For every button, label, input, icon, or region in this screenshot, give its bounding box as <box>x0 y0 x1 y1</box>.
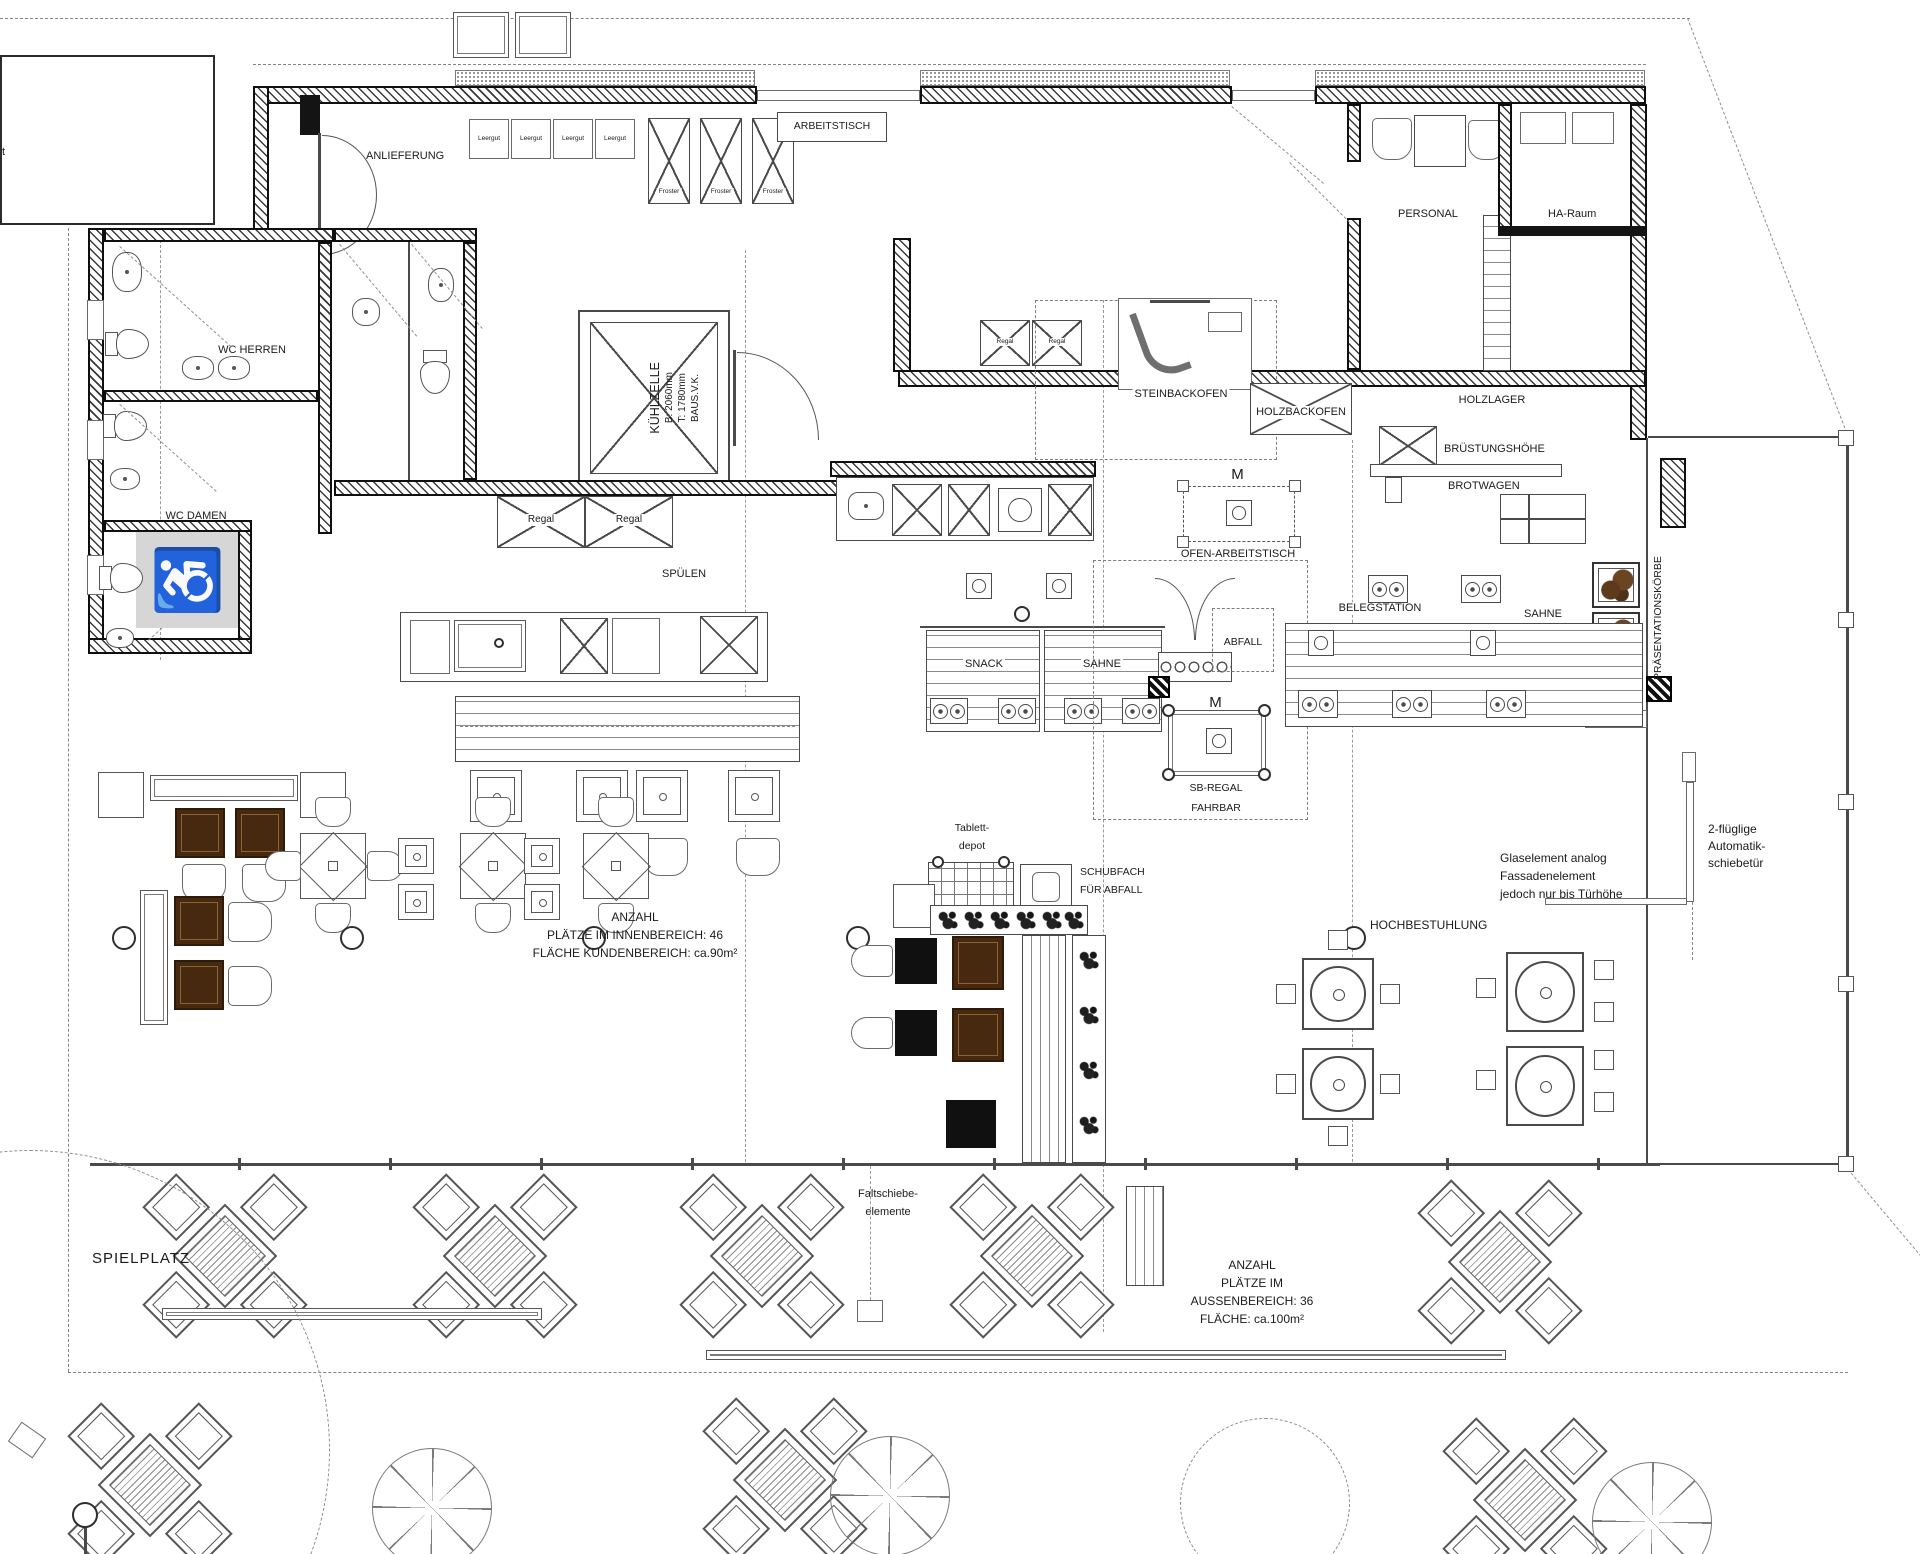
pallet-crate <box>515 12 571 58</box>
chair <box>475 797 511 827</box>
label-steinbackofen: STEINBACKOFEN <box>1133 388 1230 401</box>
pergola-column <box>1838 976 1854 992</box>
stool <box>1594 1002 1614 1022</box>
label-praesentationskoerbe: PRÄSENTATIONSKÖRBE <box>1652 520 1664 680</box>
haraum-cabinet <box>1572 112 1614 144</box>
bench-seat-vertical <box>140 890 168 1025</box>
stool <box>1594 1050 1614 1070</box>
kuehlzelle-door-swing <box>737 352 819 440</box>
exterior-wall-top <box>920 86 1232 104</box>
stool <box>1328 1126 1348 1146</box>
kuehlzelle-door-frame <box>733 350 736 446</box>
pallet-crate <box>453 12 509 58</box>
display-case <box>1368 575 1408 603</box>
haraum-wall-bottom <box>1498 226 1646 236</box>
leergut-label: Leergut <box>520 135 542 143</box>
room-label-wc-herren: WC HERREN <box>218 344 286 357</box>
label-brotwagen: BROTWAGEN <box>1448 480 1520 493</box>
dining-table <box>583 833 649 899</box>
small-table <box>398 838 434 874</box>
table-corner <box>1289 480 1301 492</box>
plant <box>1077 1113 1101 1137</box>
scullery-sink <box>454 620 526 672</box>
ofen-table-fitting <box>1226 500 1252 526</box>
label-schubfach-2: FÜR ABFALL <box>1080 884 1142 897</box>
door-jamb <box>300 95 320 135</box>
label-holzlager: HOLZLAGER <box>1459 394 1526 407</box>
room-label-personal: PERSONAL <box>1398 208 1458 221</box>
kuehlzelle-labels: KÜHLZELLE B: 2060mm T: 1780mm BAUS.V.K. <box>648 322 732 474</box>
high-table <box>1506 952 1584 1032</box>
exterior-wall-top <box>253 86 757 104</box>
delivery-door-leaf <box>322 135 377 195</box>
bar-table <box>728 770 780 822</box>
cookline-sink <box>848 492 884 520</box>
cookline-appliance <box>1048 484 1092 536</box>
brotwagen-divider-h <box>1500 518 1586 520</box>
label-sahne-right: SAHNE <box>1522 608 1564 621</box>
accessible-wc-area: ♿ <box>136 532 238 628</box>
staffwc-toilet <box>420 350 450 394</box>
table-brown <box>952 1008 1004 1062</box>
bar-counter <box>455 696 800 762</box>
plant <box>988 908 1012 932</box>
chair <box>598 797 634 827</box>
label-belegstation: BELEGSTATION <box>1337 602 1424 615</box>
note-outdoor-3: AUSSENBEREICH: 36 <box>1191 1294 1314 1308</box>
washbasin <box>182 356 214 380</box>
high-table <box>1302 958 1374 1030</box>
froster-label: Froster <box>761 188 786 196</box>
sb-caster <box>1258 704 1271 717</box>
lounge-table-brown <box>174 896 224 946</box>
plant <box>1077 1058 1101 1082</box>
kuehlzelle-baus: BAUS.V.K. <box>690 374 701 422</box>
glass-wall-segment <box>1686 782 1694 902</box>
stool <box>1380 984 1400 1004</box>
scullery-table <box>612 618 660 674</box>
tray-depot-unit <box>928 862 1014 908</box>
toilet <box>103 411 147 441</box>
leergut-label: Leergut <box>604 135 626 143</box>
oven-motor <box>1208 312 1242 332</box>
neighbor-building <box>0 55 215 225</box>
chair <box>851 945 893 977</box>
label-holzbackofen: HOLZBACKOFEN <box>1254 406 1348 419</box>
note-schiebetuer-3: schiebetür <box>1708 856 1763 870</box>
personal-locker-shelf <box>1483 215 1511 371</box>
counter-fitting <box>1014 606 1030 622</box>
note-outdoor-1: ANZAHL <box>1228 1258 1275 1272</box>
planter <box>893 884 935 928</box>
glass-partition <box>1545 898 1687 905</box>
stool <box>1476 1070 1496 1090</box>
dining-table <box>300 833 366 899</box>
display-case <box>1298 690 1338 718</box>
personal-table <box>1414 115 1466 167</box>
toilet-accessible <box>99 563 143 593</box>
bar-counter-dash <box>460 726 795 727</box>
door-swing-dotted <box>1231 106 1324 184</box>
label-schubfach-1: SCHUBFACH <box>1080 866 1145 879</box>
bakery-cafe-floor-plan: t ANLIEFERUNG Leergut Leergut Leergut Le… <box>0 0 1920 1554</box>
facade-pier <box>1660 458 1686 528</box>
window-left <box>87 300 104 340</box>
sb-caster <box>1162 704 1175 717</box>
umbrella <box>830 1436 950 1554</box>
small-table <box>398 884 434 920</box>
stool <box>1594 960 1614 980</box>
note-schiebetuer-1: 2-flüglige <box>1708 822 1757 836</box>
sb-caster <box>1258 768 1271 781</box>
label-hochbestuhlung: HOCHBESTUHLUNG <box>1370 918 1487 932</box>
washbasin <box>110 468 140 490</box>
site-line-diagonal-topright <box>1687 18 1849 438</box>
play-equipment-mushroom <box>72 1502 98 1528</box>
personal-wall-left-b <box>1347 218 1361 370</box>
urinal <box>112 252 142 292</box>
plant <box>1062 908 1086 932</box>
haraum-wall-left <box>1498 104 1512 232</box>
note-indoor-2: PLÄTZE IM INNENBEREICH: 46 <box>547 928 723 942</box>
cookline-appliance <box>892 484 942 536</box>
register <box>966 573 992 599</box>
wc-wall-right <box>318 242 332 534</box>
label-m-ofen: M <box>1231 466 1245 484</box>
leergut-label: Leergut <box>478 135 500 143</box>
lounge-table-brown <box>175 808 225 858</box>
chair <box>228 902 272 942</box>
register <box>1308 630 1334 656</box>
chair <box>736 838 780 876</box>
chair <box>265 851 301 881</box>
room-label-spuelen: SPÜLEN <box>662 568 706 581</box>
plant <box>936 908 960 932</box>
planter <box>98 772 144 818</box>
sliding-door-track <box>1692 902 1693 960</box>
regal-label: Regal <box>614 514 644 526</box>
lounge-table-brown <box>174 960 224 1010</box>
site-line-diagonal-bottomright <box>1844 1165 1920 1327</box>
washbasin-accessible <box>106 628 134 648</box>
plant <box>1077 948 1101 972</box>
label-fahrbar: FAHRBAR <box>1191 802 1241 815</box>
leergut-label: Leergut <box>562 135 584 143</box>
small-table <box>524 838 560 874</box>
door-element <box>1682 752 1696 782</box>
table-corner <box>1289 536 1301 548</box>
toilet <box>105 329 149 359</box>
door-swing-dotted <box>1289 162 1350 223</box>
stool <box>1476 978 1496 998</box>
wc-wall-top <box>104 228 334 242</box>
window-sill-strip <box>920 70 1230 86</box>
site-line-top <box>0 18 1690 19</box>
beleg-counter <box>1285 623 1643 727</box>
label-bruestungshoehe: BRÜSTUNGSHÖHE <box>1444 443 1545 456</box>
plant <box>1014 908 1038 932</box>
register <box>1046 573 1072 599</box>
cookline-wall <box>830 461 1096 477</box>
terrace-bench <box>706 1350 1506 1360</box>
oven-rail <box>1150 300 1210 303</box>
tray-caster <box>932 856 944 868</box>
column-marker <box>112 926 136 950</box>
pergola-column <box>1838 1156 1854 1172</box>
bruestung-box <box>1379 426 1437 466</box>
chair <box>644 838 688 876</box>
note-indoor-3: FLÄCHE KUNDENBEREICH: ca.90m² <box>533 946 738 960</box>
site-line-terrace-bottom <box>68 1372 1848 1373</box>
note-outdoor-4: FLÄCHE: ca.100m² <box>1200 1312 1304 1326</box>
register <box>1470 630 1496 656</box>
table-black <box>895 1010 937 1056</box>
staffwc-sink <box>352 298 380 326</box>
table-black <box>895 938 937 984</box>
room-label-anlieferung: ANLIEFERUNG <box>366 150 444 163</box>
staffwc-sink2 <box>428 268 454 302</box>
window-top <box>757 90 920 101</box>
label-spielplatz: SPIELPLATZ <box>92 1250 190 1268</box>
table-black <box>946 1100 996 1148</box>
stool <box>1328 930 1348 950</box>
roof-overhang-line <box>253 64 1646 65</box>
pergola-column <box>1838 430 1854 446</box>
wc-wall-top2 <box>334 228 477 242</box>
pergola-bottom-beam <box>1648 1163 1848 1165</box>
umbrella <box>372 1448 492 1554</box>
bruestung-bar <box>1370 464 1562 477</box>
cookline-appliance <box>948 484 990 536</box>
washbasin <box>218 356 250 380</box>
wc-wall-acc-right <box>238 530 252 654</box>
table-brown <box>952 936 1004 990</box>
table-corner <box>1177 480 1189 492</box>
play-equipment-post <box>84 1528 87 1554</box>
chair <box>315 797 351 827</box>
regal-label: Regal <box>995 338 1016 346</box>
folding-wall-ticks <box>90 1158 1660 1170</box>
label-ofen-arbeitstisch: OFEN-ARBEITSTISCH <box>1181 548 1295 561</box>
haraum-cabinet <box>1520 112 1566 144</box>
sb-center-fitting <box>1206 728 1232 754</box>
bread-basket <box>1592 562 1640 608</box>
display-case <box>1392 690 1432 718</box>
chair <box>228 966 272 1006</box>
stool <box>1380 1074 1400 1094</box>
leader-box <box>857 1300 883 1322</box>
froster-label: Froster <box>709 188 734 196</box>
personal-wall-left-a <box>1347 104 1361 162</box>
chair <box>851 1017 893 1049</box>
bench-seat <box>150 775 298 801</box>
staffwc-wall-right <box>463 242 477 480</box>
room-label-haraum: HA-Raum <box>1548 208 1596 221</box>
bakery-wall-left <box>893 238 911 372</box>
stool <box>1276 1074 1296 1094</box>
label-faltschiebe-1: Faltschiebe- <box>858 1188 918 1201</box>
neighbor-cut-text: t <box>2 146 5 159</box>
kuehlzelle-depth: T: 1780mm <box>677 373 688 422</box>
scullery-island <box>700 616 758 674</box>
room-label-wc-damen: WC DAMEN <box>165 510 226 523</box>
door-swing-dotted <box>339 244 417 337</box>
label-faltschiebe-2: elemente <box>865 1206 910 1219</box>
table-corner <box>1177 536 1189 548</box>
wc-wall-mid1 <box>104 390 318 402</box>
plant <box>1077 1003 1101 1027</box>
sb-zone <box>1093 560 1308 820</box>
stool <box>1594 1092 1614 1112</box>
froster-label: Froster <box>657 188 682 196</box>
display-case <box>930 698 968 724</box>
small-table <box>524 884 560 920</box>
tray-caster <box>998 856 1010 868</box>
dining-table <box>460 833 526 899</box>
stool <box>1276 984 1296 1004</box>
note-glaselement-2: Fassadenelement <box>1500 869 1595 883</box>
column-marker <box>340 926 364 950</box>
label-tablett-1: Tablett- <box>955 822 989 835</box>
exterior-wall-left-top <box>253 86 269 230</box>
exterior-wall-top <box>1315 86 1646 104</box>
label-sb-regal: SB-REGAL <box>1189 782 1242 795</box>
window-top <box>1232 90 1315 101</box>
cookline-kettle <box>998 488 1042 532</box>
personal-chair <box>1372 118 1412 160</box>
dishwasher <box>560 618 608 674</box>
bruestung-post <box>1385 477 1402 503</box>
scullery-cabinet <box>410 620 450 674</box>
exterior-wall-right <box>1630 104 1647 440</box>
tree-canopy <box>1180 1418 1350 1554</box>
label-tablett-2: depot <box>959 840 985 853</box>
pergola-top-beam <box>1648 436 1848 438</box>
stacked-furniture <box>1126 1186 1164 1286</box>
window-sill-strip <box>455 70 755 86</box>
label-snack: SNACK <box>963 658 1005 671</box>
display-case <box>1486 690 1526 718</box>
staffwc-partition <box>408 242 410 480</box>
kuehlzelle-width: B: 2060mm <box>664 372 675 423</box>
arbeitstisch-label: ARBEITSTISCH <box>794 120 870 133</box>
chair <box>475 903 511 933</box>
high-table <box>1506 1046 1584 1126</box>
sb-caster <box>1162 768 1175 781</box>
note-indoor-1: ANZAHL <box>611 910 658 924</box>
waste-drawer-inner <box>1032 872 1060 902</box>
note-outdoor-2: PLÄTZE IM <box>1221 1276 1283 1290</box>
plant <box>962 908 986 932</box>
window-sill-strip <box>1315 70 1645 86</box>
kuehlzelle-name: KÜHLZELLE <box>648 362 662 434</box>
display-case <box>998 698 1036 724</box>
note-schiebetuer-2: Automatik- <box>1708 839 1765 853</box>
pergola-column <box>1838 612 1854 628</box>
plant <box>1040 908 1064 932</box>
wheelchair-icon: ♿ <box>152 543 223 618</box>
high-table <box>1302 1048 1374 1120</box>
glass-front <box>1646 438 1648 1165</box>
display-case <box>1461 575 1501 603</box>
bar-table <box>636 770 688 822</box>
note-glaselement-1: Glaselement analog <box>1500 851 1607 865</box>
regal-label: Regal <box>526 514 556 526</box>
pergola-column <box>1838 794 1854 810</box>
scullery-faucet <box>494 638 504 648</box>
window-left <box>87 420 104 460</box>
